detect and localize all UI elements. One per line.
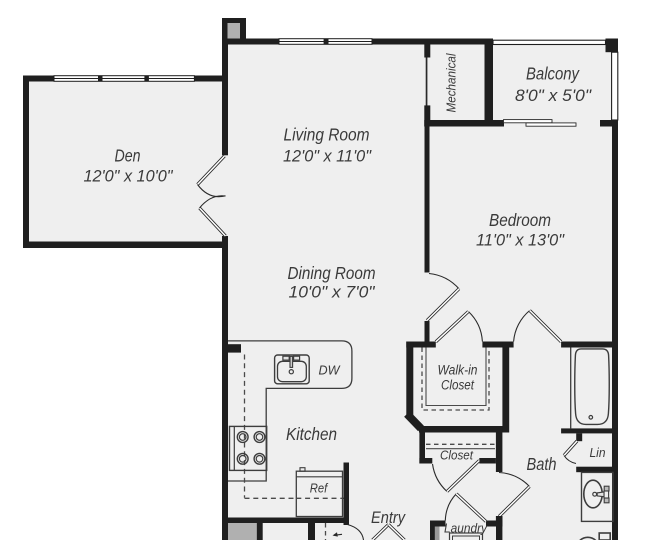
svg-text:Entry: Entry	[371, 509, 407, 527]
svg-text:10'0" x 7'0": 10'0" x 7'0"	[289, 284, 376, 302]
svg-text:Bath: Bath	[527, 454, 557, 474]
svg-text:11'0" x 13'0": 11'0" x 13'0"	[476, 232, 565, 250]
svg-text:Balcony: Balcony	[526, 64, 580, 84]
svg-text:Mechanical: Mechanical	[443, 53, 458, 113]
svg-text:Dining Room: Dining Room	[288, 263, 376, 283]
svg-text:Kitchen: Kitchen	[286, 424, 337, 444]
svg-text:Ref: Ref	[310, 481, 329, 496]
svg-text:Laundry: Laundry	[444, 521, 488, 536]
svg-text:Closet: Closet	[441, 378, 475, 393]
svg-text:Walk-in: Walk-in	[438, 363, 478, 378]
svg-text:Den: Den	[115, 146, 141, 166]
svg-text:Lin: Lin	[590, 445, 606, 460]
svg-text:Living Room: Living Room	[284, 125, 370, 145]
svg-text:DW: DW	[319, 363, 342, 378]
svg-text:8'0" x 5'0": 8'0" x 5'0"	[515, 87, 592, 105]
svg-text:Bedroom: Bedroom	[489, 210, 551, 230]
svg-text:Closet: Closet	[440, 448, 474, 463]
svg-text:12'0" x 10'0": 12'0" x 10'0"	[84, 168, 174, 186]
svg-text:12'0" x 11'0": 12'0" x 11'0"	[283, 148, 372, 166]
